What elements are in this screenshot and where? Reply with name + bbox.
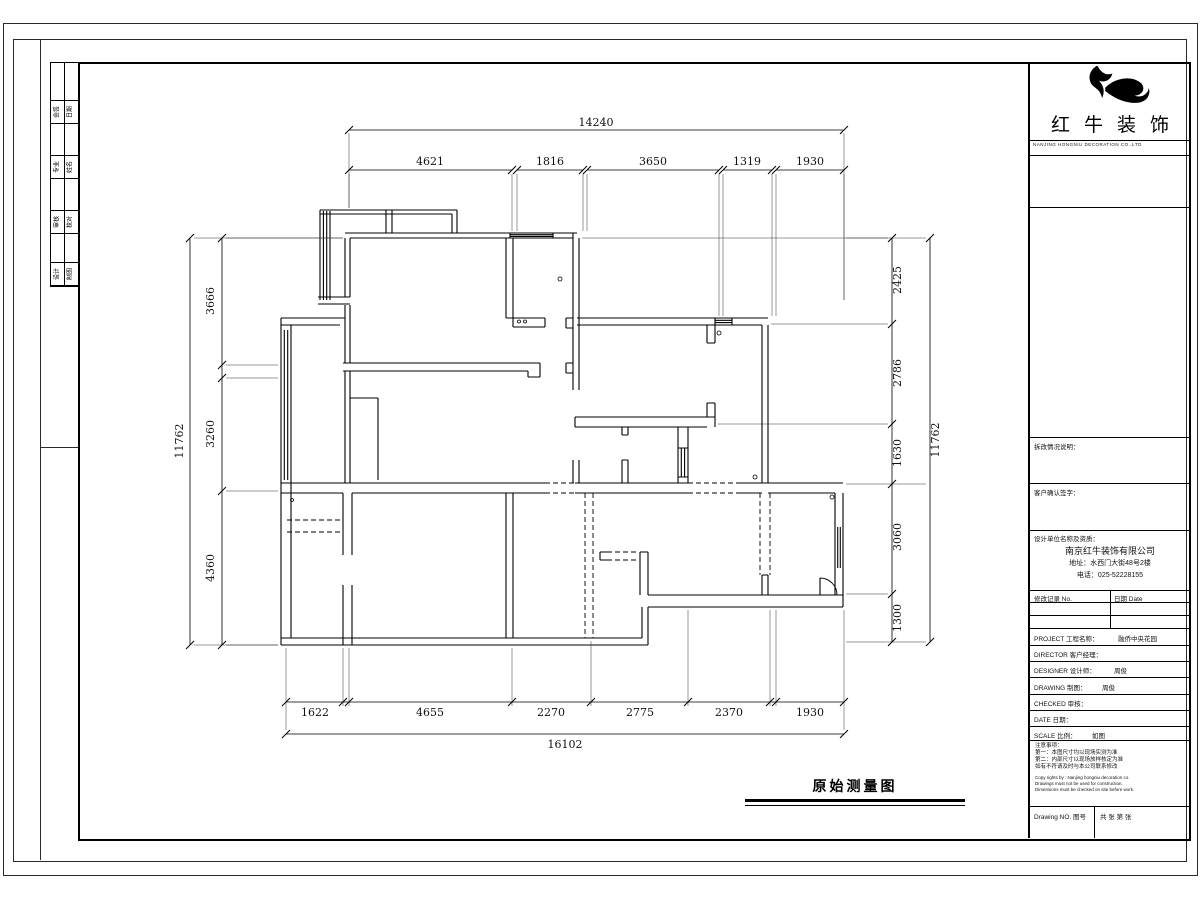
dim-right: 1630 <box>891 439 904 467</box>
title-underline-thin <box>745 805 965 806</box>
sheet-count-label: 共 张 第 张 <box>1100 811 1131 821</box>
brand-name: 红牛装饰 <box>1030 110 1190 137</box>
drawing-row-label: DRAWING 制图： <box>1034 682 1086 692</box>
dim-top: 1930 <box>796 155 824 168</box>
dim-left-total: 11762 <box>173 424 186 459</box>
brand-logo-icon <box>1070 64 1150 110</box>
date-row-label: DATE 日期： <box>1034 714 1072 724</box>
designer-row-value: 周俊 <box>1114 665 1127 675</box>
dim-bottom: 1930 <box>796 706 824 719</box>
dim-bottom: 2370 <box>715 706 743 719</box>
dim-bottom: 1622 <box>301 706 329 719</box>
dim-top: 1816 <box>536 155 564 168</box>
dim-left: 3666 <box>204 287 217 315</box>
scale-row-label: SCALE 比例： <box>1034 730 1077 740</box>
dim-right: 3060 <box>891 523 904 551</box>
company-phone: 电话：025-52228155 <box>1030 570 1190 580</box>
dim-bottom: 4655 <box>416 706 444 719</box>
note-line: 第二：内部尺寸以现场放样核定为准 <box>1035 757 1185 764</box>
project-row-value: 融侨中央花园 <box>1118 633 1157 643</box>
drawing-title: 原始测量图 <box>745 776 965 796</box>
survey-marks <box>291 277 835 502</box>
dim-top: 1319 <box>733 155 761 168</box>
project-row-label: PROJECT 工程名称： <box>1034 633 1099 643</box>
dimension-lines <box>190 130 930 734</box>
brand-subtitle: NANJING HONGNIU DECORATION CO.,LTD <box>1033 142 1187 147</box>
dim-top: 3650 <box>639 155 667 168</box>
floor-plan: 14240 4621 1816 3650 1319 1930 1622 4655… <box>0 0 1200 900</box>
dim-bottom-total: 16102 <box>548 738 583 751</box>
section-client-label: 客户确认签字： <box>1034 487 1080 497</box>
notes-block: 注意事项： 第一：本图尺寸均以现场实测为准 第二：内部尺寸以现场放样核定为准 如… <box>1035 743 1185 793</box>
extension-lines <box>194 133 926 730</box>
director-row-label: DIRECTOR 客户经理： <box>1034 649 1102 659</box>
walls-dashed <box>287 483 770 638</box>
notes-title: 注意事项： <box>1035 743 1185 750</box>
dim-top-total: 14240 <box>579 116 614 129</box>
company-address: 地址：水西门大街48号2楼 <box>1030 558 1190 568</box>
dim-bottom: 2775 <box>626 706 654 719</box>
section-company-label: 设计单位名称及资质： <box>1034 533 1099 543</box>
cad-sheet: 会签 日期 专业 姓名 审核 校对 设计 制图 <box>0 0 1200 900</box>
dim-left: 4360 <box>204 554 217 582</box>
scale-row-value: 如图 <box>1092 730 1105 740</box>
dim-right-total: 11762 <box>929 423 942 458</box>
note-line: 第一：本图尺寸均以现场实测为准 <box>1035 750 1185 757</box>
designer-row-label: DESIGNER 设计师： <box>1034 665 1096 675</box>
note-line-en: Dimensions must be checked on site befor… <box>1035 787 1185 793</box>
dim-right: 1300 <box>891 604 904 632</box>
dim-right: 2425 <box>891 266 904 294</box>
section-demolition-label: 拆改情况说明： <box>1034 441 1080 451</box>
company-name: 南京红牛装饰有限公司 <box>1030 544 1190 557</box>
drawing-row-value: 周俊 <box>1102 682 1115 692</box>
dim-bottom: 2270 <box>537 706 565 719</box>
dim-right: 2786 <box>891 359 904 387</box>
dim-left: 3260 <box>204 420 217 448</box>
dim-top: 4621 <box>416 155 444 168</box>
note-line: 如有不符请及时与本公司联系修改 <box>1035 764 1185 771</box>
title-block: 红牛装饰 NANJING HONGNIU DECORATION CO.,LTD … <box>1028 62 1190 838</box>
title-underline-thick <box>745 799 965 802</box>
drawing-no-label: Drawing NO. 图号 <box>1034 811 1086 821</box>
dimension-ticks <box>186 126 934 738</box>
checked-row-label: CHECKED 审核： <box>1034 698 1087 708</box>
walls-solid <box>281 210 843 645</box>
